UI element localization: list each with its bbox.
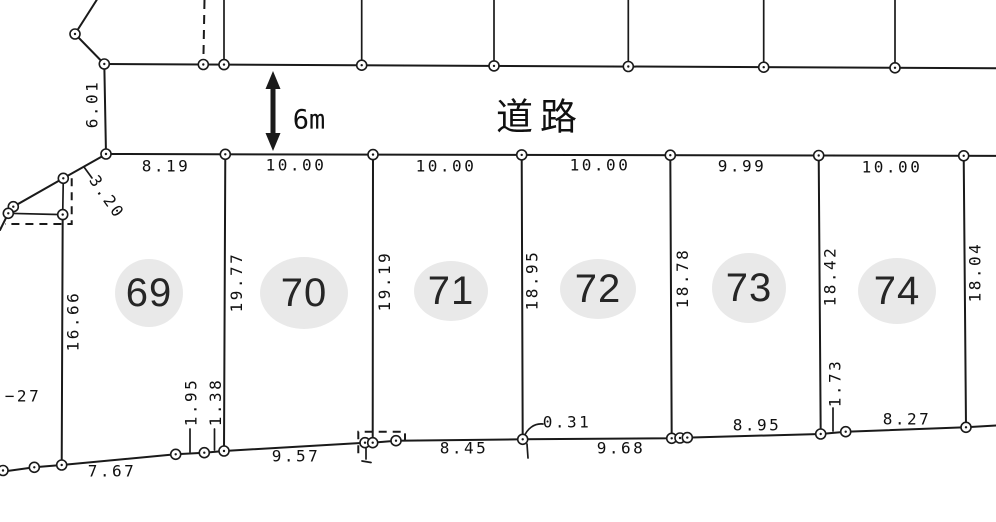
survey-point-dot bbox=[74, 33, 76, 35]
top-width-label-70: 10.00 bbox=[266, 156, 327, 175]
survey-point-dot bbox=[12, 206, 14, 208]
bottom-length-label-4: 8.95 bbox=[733, 416, 782, 435]
depth-label-70-71: 19.19 bbox=[375, 251, 394, 312]
bottom-length-label-2: 8.45 bbox=[440, 439, 489, 458]
top-width-label-73: 9.99 bbox=[718, 157, 767, 176]
survey-point-dot bbox=[33, 466, 35, 468]
survey-point-dot bbox=[818, 154, 820, 156]
tick-below-node-0-31 bbox=[527, 444, 528, 458]
plot-number-73: 73 bbox=[726, 266, 773, 310]
survey-point-dot bbox=[671, 437, 673, 439]
west-jog-horizontal bbox=[8, 213, 62, 214]
plot-number-69: 69 bbox=[126, 271, 173, 315]
survey-point-dot bbox=[679, 437, 681, 439]
top-width-label-69: 8.19 bbox=[142, 157, 191, 176]
road-width-label: 6m bbox=[293, 105, 326, 136]
top-width-label-74: 10.00 bbox=[862, 158, 923, 177]
survey-point-dot bbox=[894, 67, 896, 69]
depth-label-69-70: 19.77 bbox=[227, 252, 246, 313]
small-dash-mark bbox=[362, 461, 371, 463]
survey-point-dot bbox=[223, 63, 225, 65]
leader-tick-3-20 bbox=[84, 167, 92, 178]
plat-map-svg: 69 70 71 72 73 74 道路 6m 8.19 10.00 10.00… bbox=[0, 0, 996, 522]
survey-point-dot bbox=[224, 153, 226, 155]
west-side-label: 16.66 bbox=[64, 291, 83, 352]
plot-number-70: 70 bbox=[281, 271, 328, 315]
bottom-length-label-1: 9.57 bbox=[272, 447, 321, 466]
survey-point-dot bbox=[361, 64, 363, 66]
survey-point-dot bbox=[627, 65, 629, 67]
survey-point-dot bbox=[203, 452, 205, 454]
survey-point-dot bbox=[105, 153, 107, 155]
survey-point-dot bbox=[223, 450, 225, 452]
small-offset-label-1-95: 1.95 bbox=[182, 378, 201, 427]
cadastral-plat-map: 69 70 71 72 73 74 道路 6m 8.19 10.00 10.00… bbox=[0, 0, 996, 522]
survey-point-dot bbox=[763, 66, 765, 68]
survey-point-dot bbox=[372, 153, 374, 155]
survey-point-dot bbox=[965, 426, 967, 428]
plot-number-72: 72 bbox=[575, 267, 622, 311]
upper-lot-line-dashed bbox=[203, 0, 204, 65]
survey-point-dot bbox=[820, 433, 822, 435]
survey-point-dot bbox=[364, 442, 366, 444]
survey-point-dot bbox=[202, 63, 204, 65]
road-west-edge bbox=[104, 64, 106, 154]
survey-point-dot bbox=[7, 212, 9, 214]
survey-point-dot bbox=[372, 442, 374, 444]
survey-point-dot bbox=[395, 440, 397, 442]
survey-point-dot bbox=[521, 154, 523, 156]
survey-point-dot bbox=[103, 63, 105, 65]
survey-point-dot bbox=[493, 65, 495, 67]
road-top-line bbox=[104, 64, 996, 68]
survey-point-dot bbox=[963, 155, 965, 157]
survey-point-dot bbox=[669, 154, 671, 156]
depth-label-71-72: 18.95 bbox=[523, 250, 542, 311]
plot-number-71: 71 bbox=[428, 269, 475, 313]
survey-point-dot bbox=[686, 436, 688, 438]
small-offset-label-1-38: 1.38 bbox=[206, 378, 225, 427]
top-width-label-72: 10.00 bbox=[570, 156, 631, 175]
west-upper-label: 6.01 bbox=[83, 80, 102, 129]
leader-curve-0-31 bbox=[524, 424, 543, 437]
survey-point-dot bbox=[2, 469, 4, 471]
depth-label-73-74: 18.42 bbox=[821, 246, 840, 307]
bottom-length-label-0: 7.67 bbox=[88, 462, 137, 481]
top-width-label-71: 10.00 bbox=[416, 157, 477, 176]
depth-label-74-east: 18.04 bbox=[966, 242, 985, 303]
boundary-72-73 bbox=[670, 155, 671, 438]
survey-point-dot bbox=[845, 431, 847, 433]
west-diagonal-boundary bbox=[0, 155, 105, 230]
survey-point-dot bbox=[62, 213, 64, 215]
bottom-length-label-3: 9.68 bbox=[597, 439, 646, 458]
survey-point-dot bbox=[61, 464, 63, 466]
small-offset-label-0-31: 0.31 bbox=[543, 413, 592, 432]
west-diagonal-label: 3.20 bbox=[85, 172, 128, 223]
survey-point-dot bbox=[522, 438, 524, 440]
road-width-arrow-icon bbox=[266, 71, 281, 151]
survey-point-dot bbox=[175, 453, 177, 455]
edge-partial-label: −27 bbox=[5, 387, 41, 406]
small-offset-label-1-73: 1.73 bbox=[826, 359, 845, 408]
bottom-length-label-5: 8.27 bbox=[883, 410, 932, 429]
road-bottom-line bbox=[106, 154, 996, 156]
depth-label-72-73: 18.78 bbox=[673, 248, 692, 309]
road-label: 道路 bbox=[496, 96, 584, 139]
survey-point-dot bbox=[62, 177, 64, 179]
plot-number-74: 74 bbox=[874, 269, 921, 313]
